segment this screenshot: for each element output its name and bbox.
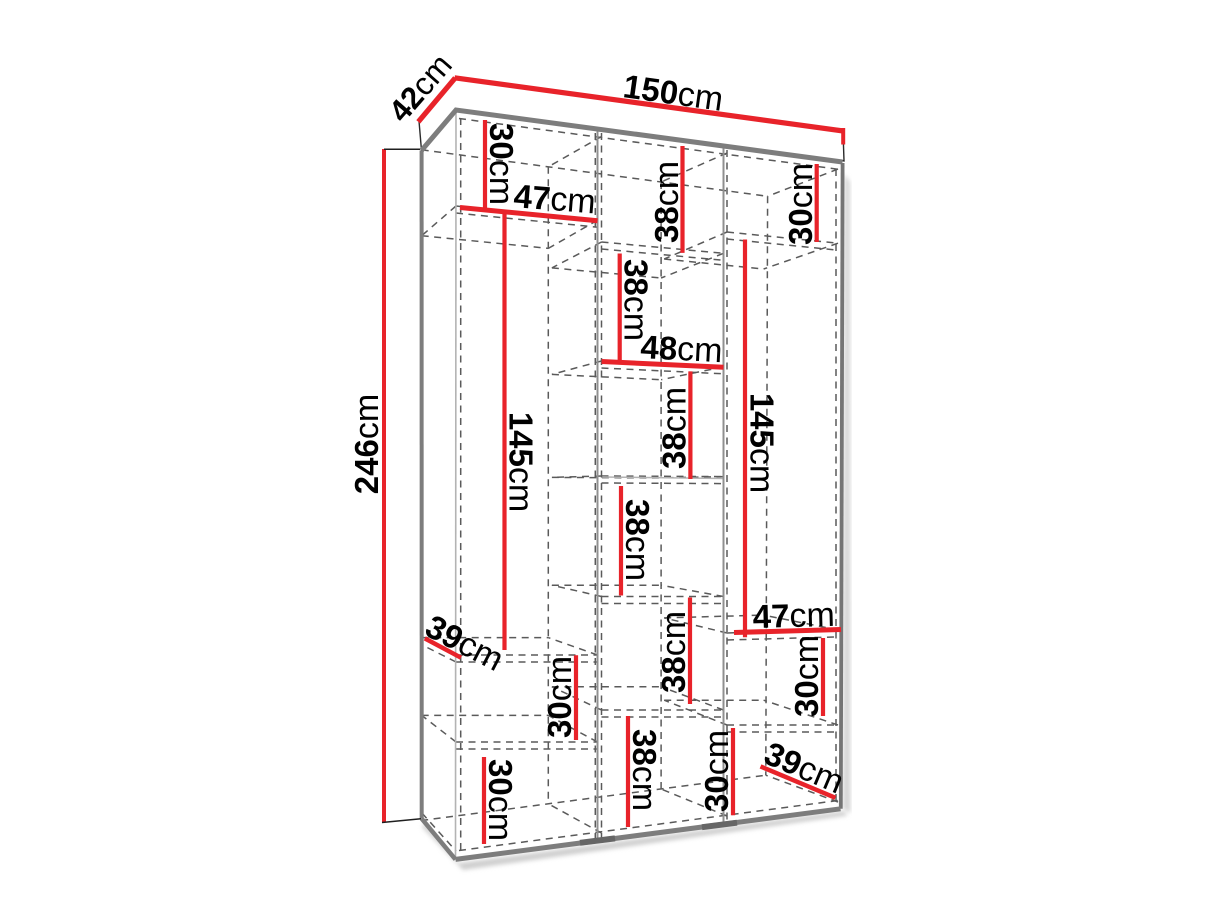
svg-text:30cm: 30cm: [698, 730, 736, 812]
svg-text:246cm: 246cm: [348, 394, 386, 494]
svg-text:38cm: 38cm: [655, 611, 693, 693]
svg-text:30cm: 30cm: [541, 656, 579, 738]
svg-text:30cm: 30cm: [782, 163, 820, 245]
svg-text:145cm: 145cm: [743, 393, 781, 493]
svg-text:30cm: 30cm: [481, 759, 519, 841]
svg-text:38cm: 38cm: [625, 729, 663, 811]
svg-text:30cm: 30cm: [788, 635, 826, 717]
svg-text:145cm: 145cm: [502, 412, 540, 512]
svg-text:47cm: 47cm: [512, 177, 597, 221]
svg-text:38cm: 38cm: [648, 161, 686, 243]
svg-text:38cm: 38cm: [618, 499, 656, 581]
svg-text:48cm: 48cm: [640, 328, 724, 370]
svg-text:47cm: 47cm: [752, 596, 835, 636]
svg-text:38cm: 38cm: [655, 387, 693, 469]
